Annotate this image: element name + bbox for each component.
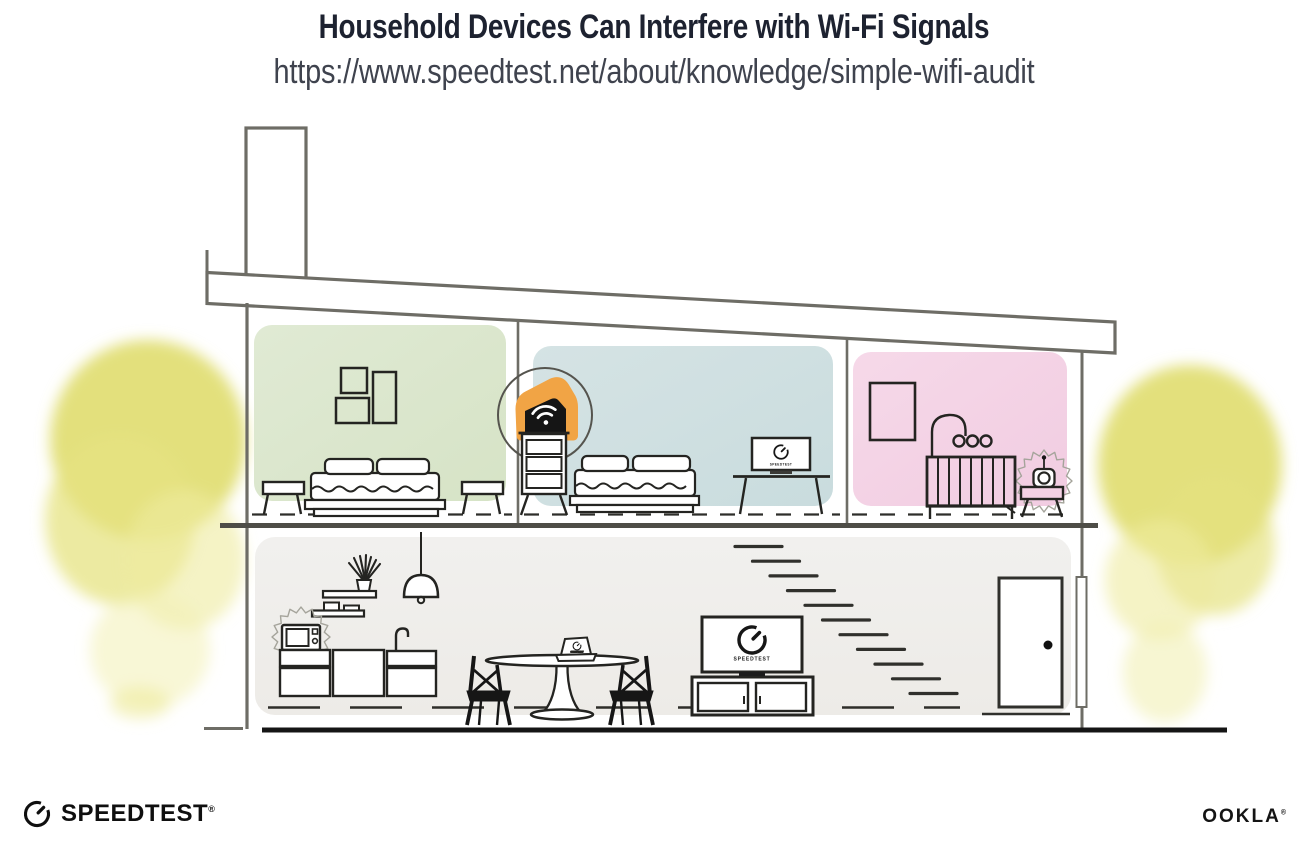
registered-mark: ® <box>1281 810 1288 817</box>
laptop-screen-label: SPEEDTEST <box>570 652 584 654</box>
ookla-logo: OOKLA® <box>1202 806 1288 828</box>
speedtest-logo: SPEEDTEST® <box>22 799 215 829</box>
chimney <box>246 128 306 285</box>
ookla-wordmark: OOKLA <box>1202 806 1281 827</box>
house-structure <box>207 128 1115 353</box>
house-illustration: SPEEDTEST <box>0 0 1308 861</box>
left-tree-icon <box>45 340 246 719</box>
monitor-screen-label: SPEEDTEST <box>770 463 793 467</box>
computer-monitor-icon: SPEEDTEST <box>752 438 810 474</box>
tv-screen-label: SPEEDTEST <box>734 657 771 663</box>
wifi-router-icon <box>520 382 574 436</box>
door-knob <box>1044 641 1053 650</box>
tv-icon: SPEEDTEST <box>702 617 802 676</box>
infographic-canvas: Household Devices Can Interfere with Wi-… <box>0 0 1308 861</box>
downspout <box>1077 577 1087 707</box>
microwave-icon <box>282 625 320 650</box>
speedtest-gauge-logo-icon <box>22 799 52 829</box>
blue-bedroom-bed-icon <box>570 456 699 512</box>
right-tree-icon <box>1098 365 1282 722</box>
media-console <box>692 677 813 715</box>
speedtest-wordmark: SPEEDTEST® <box>61 800 215 828</box>
registered-mark: ® <box>208 804 215 814</box>
